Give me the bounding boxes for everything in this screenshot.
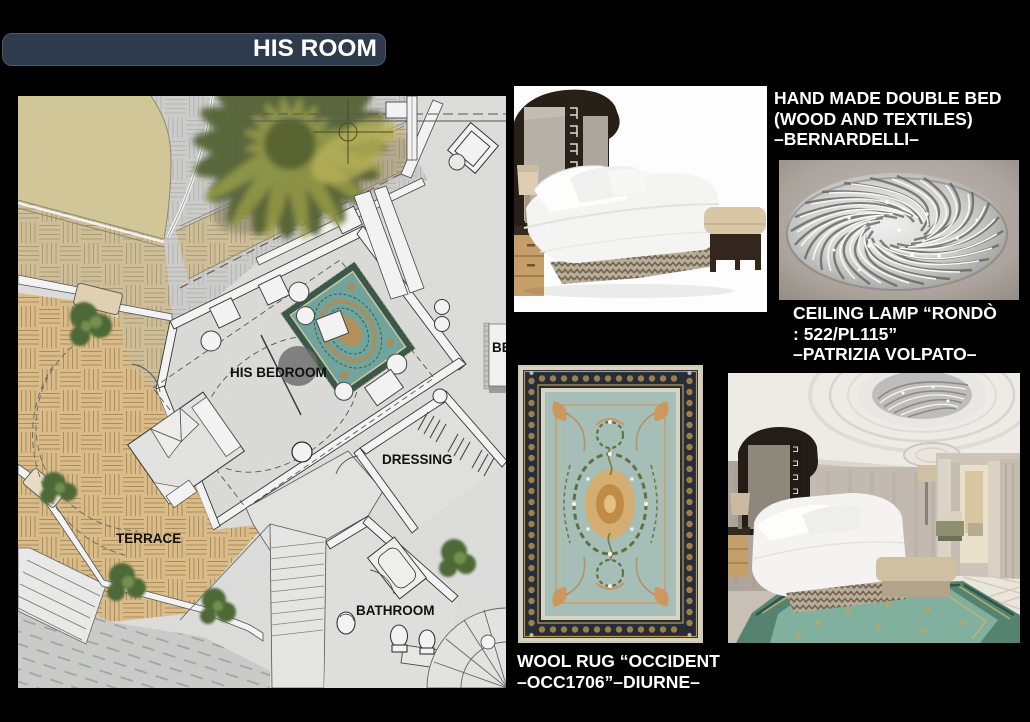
svg-text:HIS BEDROOM: HIS BEDROOM: [230, 365, 327, 380]
svg-text:TERRACE: TERRACE: [116, 531, 181, 546]
svg-text:BATHROOM: BATHROOM: [356, 603, 435, 618]
svg-text:DRESSING: DRESSING: [382, 452, 453, 467]
svg-text:BE: BE: [492, 340, 506, 355]
